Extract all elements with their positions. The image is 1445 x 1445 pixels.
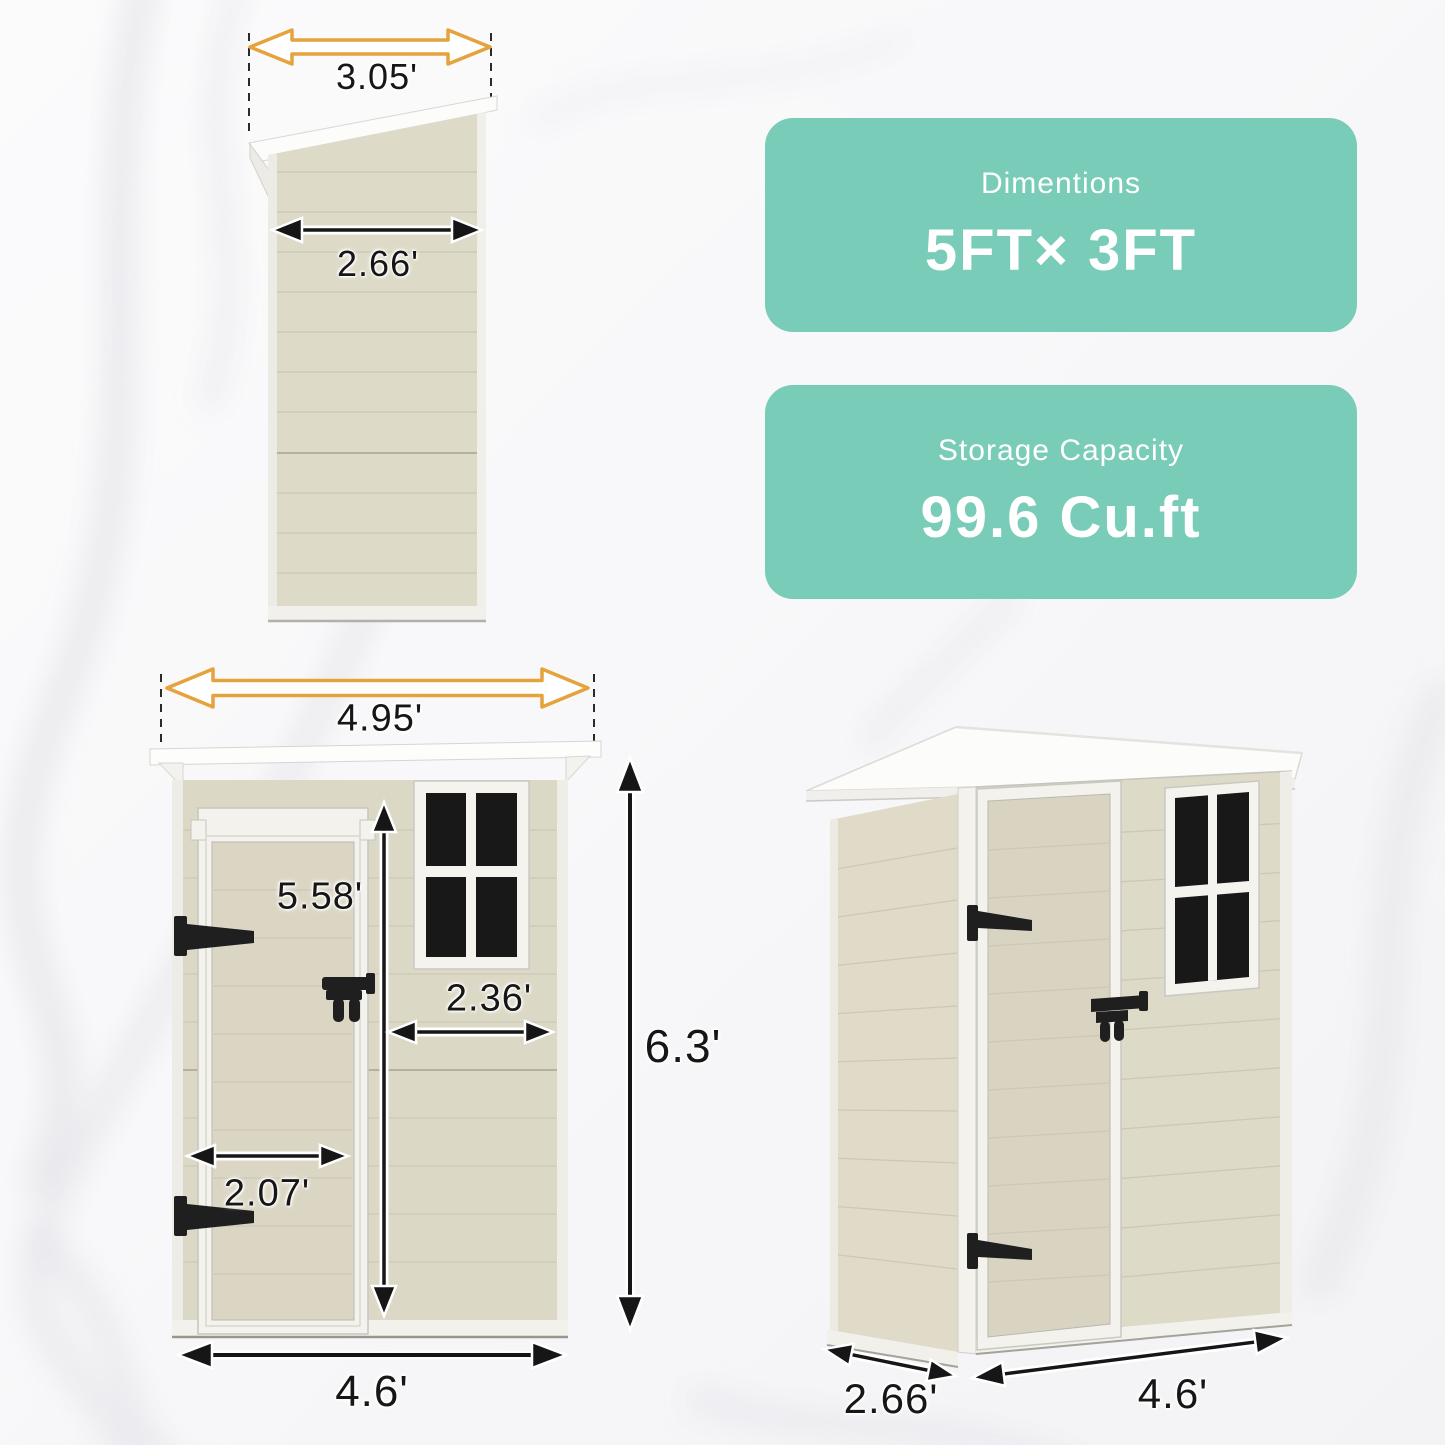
side-roof-width-label: 3.05' (336, 56, 418, 98)
front-overall-height-label: 6.3' (645, 1019, 722, 1073)
front-overall-height-arrow-icon (617, 758, 643, 1330)
perspective-door-hinge-icon (967, 905, 1032, 1269)
perspective-width-label: 4.6' (1138, 1370, 1208, 1418)
perspective-door-latch-icon (1091, 991, 1148, 1042)
front-view-drawing (150, 669, 643, 1368)
side-wall-width-label: 2.66' (337, 243, 419, 285)
dimensions-card-value: 5FT× 3FT (925, 217, 1197, 284)
front-base-width-label: 4.6' (335, 1367, 409, 1417)
front-door-latch-icon (322, 973, 375, 1022)
side-wall-width-arrow-icon (272, 218, 482, 242)
front-door-width-label: 2.07' (224, 1173, 310, 1216)
storage-capacity-card: Storage Capacity 99.6 Cu.ft (765, 385, 1357, 599)
front-roof-width-label: 4.95' (337, 698, 423, 741)
perspective-width-arrow-icon (972, 1330, 1287, 1386)
front-window-width-label: 2.36' (446, 978, 532, 1021)
front-window (414, 781, 529, 969)
perspective-door (977, 781, 1121, 1350)
perspective-depth-label: 2.66' (844, 1375, 939, 1423)
perspective-view-drawing (806, 727, 1302, 1386)
side-view-drawing (249, 30, 497, 622)
storage-capacity-card-value: 99.6 Cu.ft (920, 484, 1201, 551)
dimensions-card: Dimentions 5FT× 3FT (765, 118, 1357, 332)
perspective-window (1165, 781, 1259, 996)
front-door-height-arrow-icon (372, 802, 396, 1316)
front-window-width-arrow-icon (388, 1021, 553, 1043)
shed-dimension-infographic: Dimentions 5FT× 3FT Storage Capacity 99.… (0, 0, 1445, 1445)
dimensions-card-title: Dimentions (981, 167, 1141, 201)
front-base-width-arrow-icon (178, 1342, 566, 1368)
storage-capacity-card-title: Storage Capacity (938, 434, 1184, 468)
front-door-height-label: 5.58' (277, 876, 363, 919)
front-door-width-arrow-icon (187, 1145, 348, 1167)
